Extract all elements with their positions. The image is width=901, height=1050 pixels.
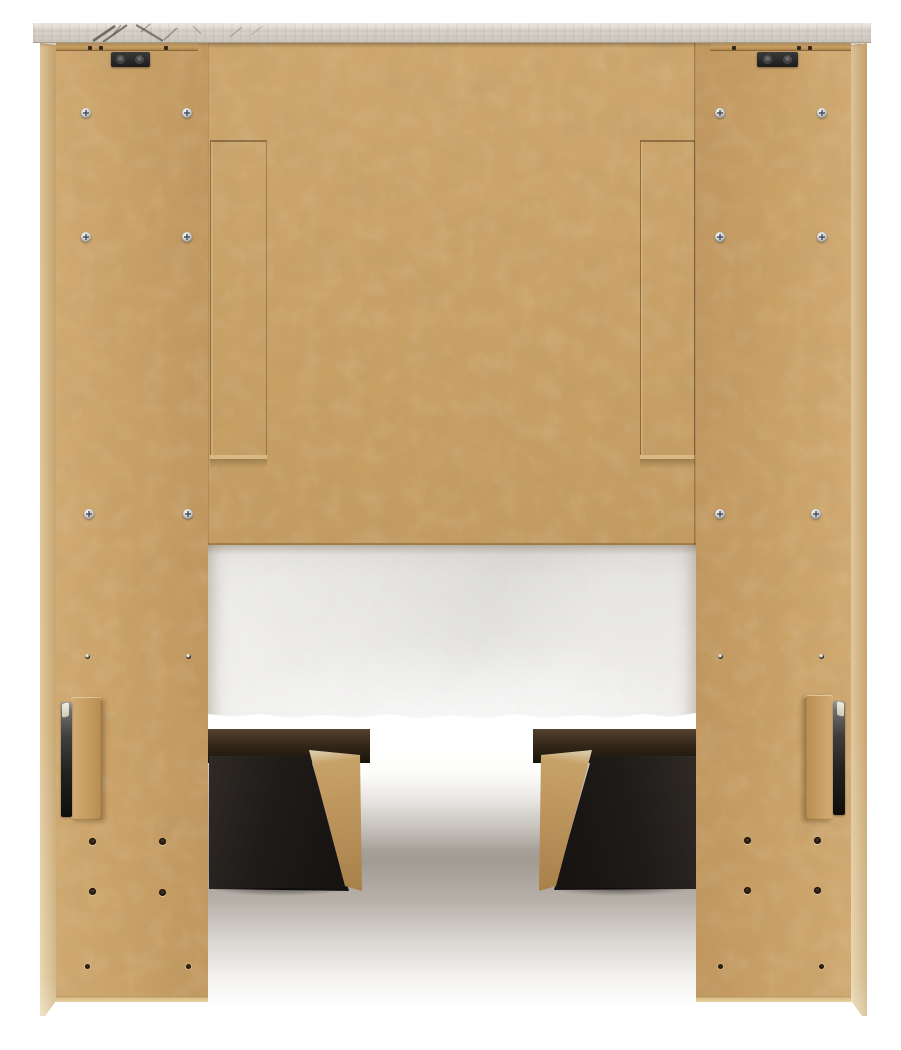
pin-hole: [819, 654, 824, 659]
pilot-hole: [85, 964, 90, 969]
phillips-screw: [182, 232, 192, 242]
dowel-hole: [744, 887, 751, 894]
dowel-hole: [159, 838, 166, 845]
phillips-screw: [817, 108, 827, 118]
hardware-layer: [0, 0, 901, 1050]
phillips-screw: [81, 108, 91, 118]
dowel-hole: [89, 838, 96, 845]
pin-hole: [718, 654, 723, 659]
rail-pin: [797, 46, 801, 50]
dowel-hole: [744, 837, 751, 844]
rail-pin: [99, 46, 103, 50]
pin-hole: [85, 654, 90, 659]
bed-back-product-photo: [0, 0, 901, 1050]
dowel-hole: [159, 889, 166, 896]
dowel-hole: [814, 887, 821, 894]
phillips-screw: [81, 232, 91, 242]
pin-hole: [186, 654, 191, 659]
rail-pin: [164, 46, 168, 50]
phillips-screw: [182, 108, 192, 118]
rail-pin: [732, 46, 736, 50]
pilot-hole: [819, 964, 824, 969]
dowel-hole: [814, 837, 821, 844]
dowel-hole: [89, 888, 96, 895]
phillips-screw: [817, 232, 827, 242]
phillips-screw: [715, 232, 725, 242]
rail-pin: [808, 46, 812, 50]
phillips-screw: [715, 509, 725, 519]
rail-pin: [88, 46, 92, 50]
phillips-screw: [84, 509, 94, 519]
phillips-screw: [811, 509, 821, 519]
pilot-hole: [718, 964, 723, 969]
pilot-hole: [186, 964, 191, 969]
phillips-screw: [715, 108, 725, 118]
phillips-screw: [183, 509, 193, 519]
